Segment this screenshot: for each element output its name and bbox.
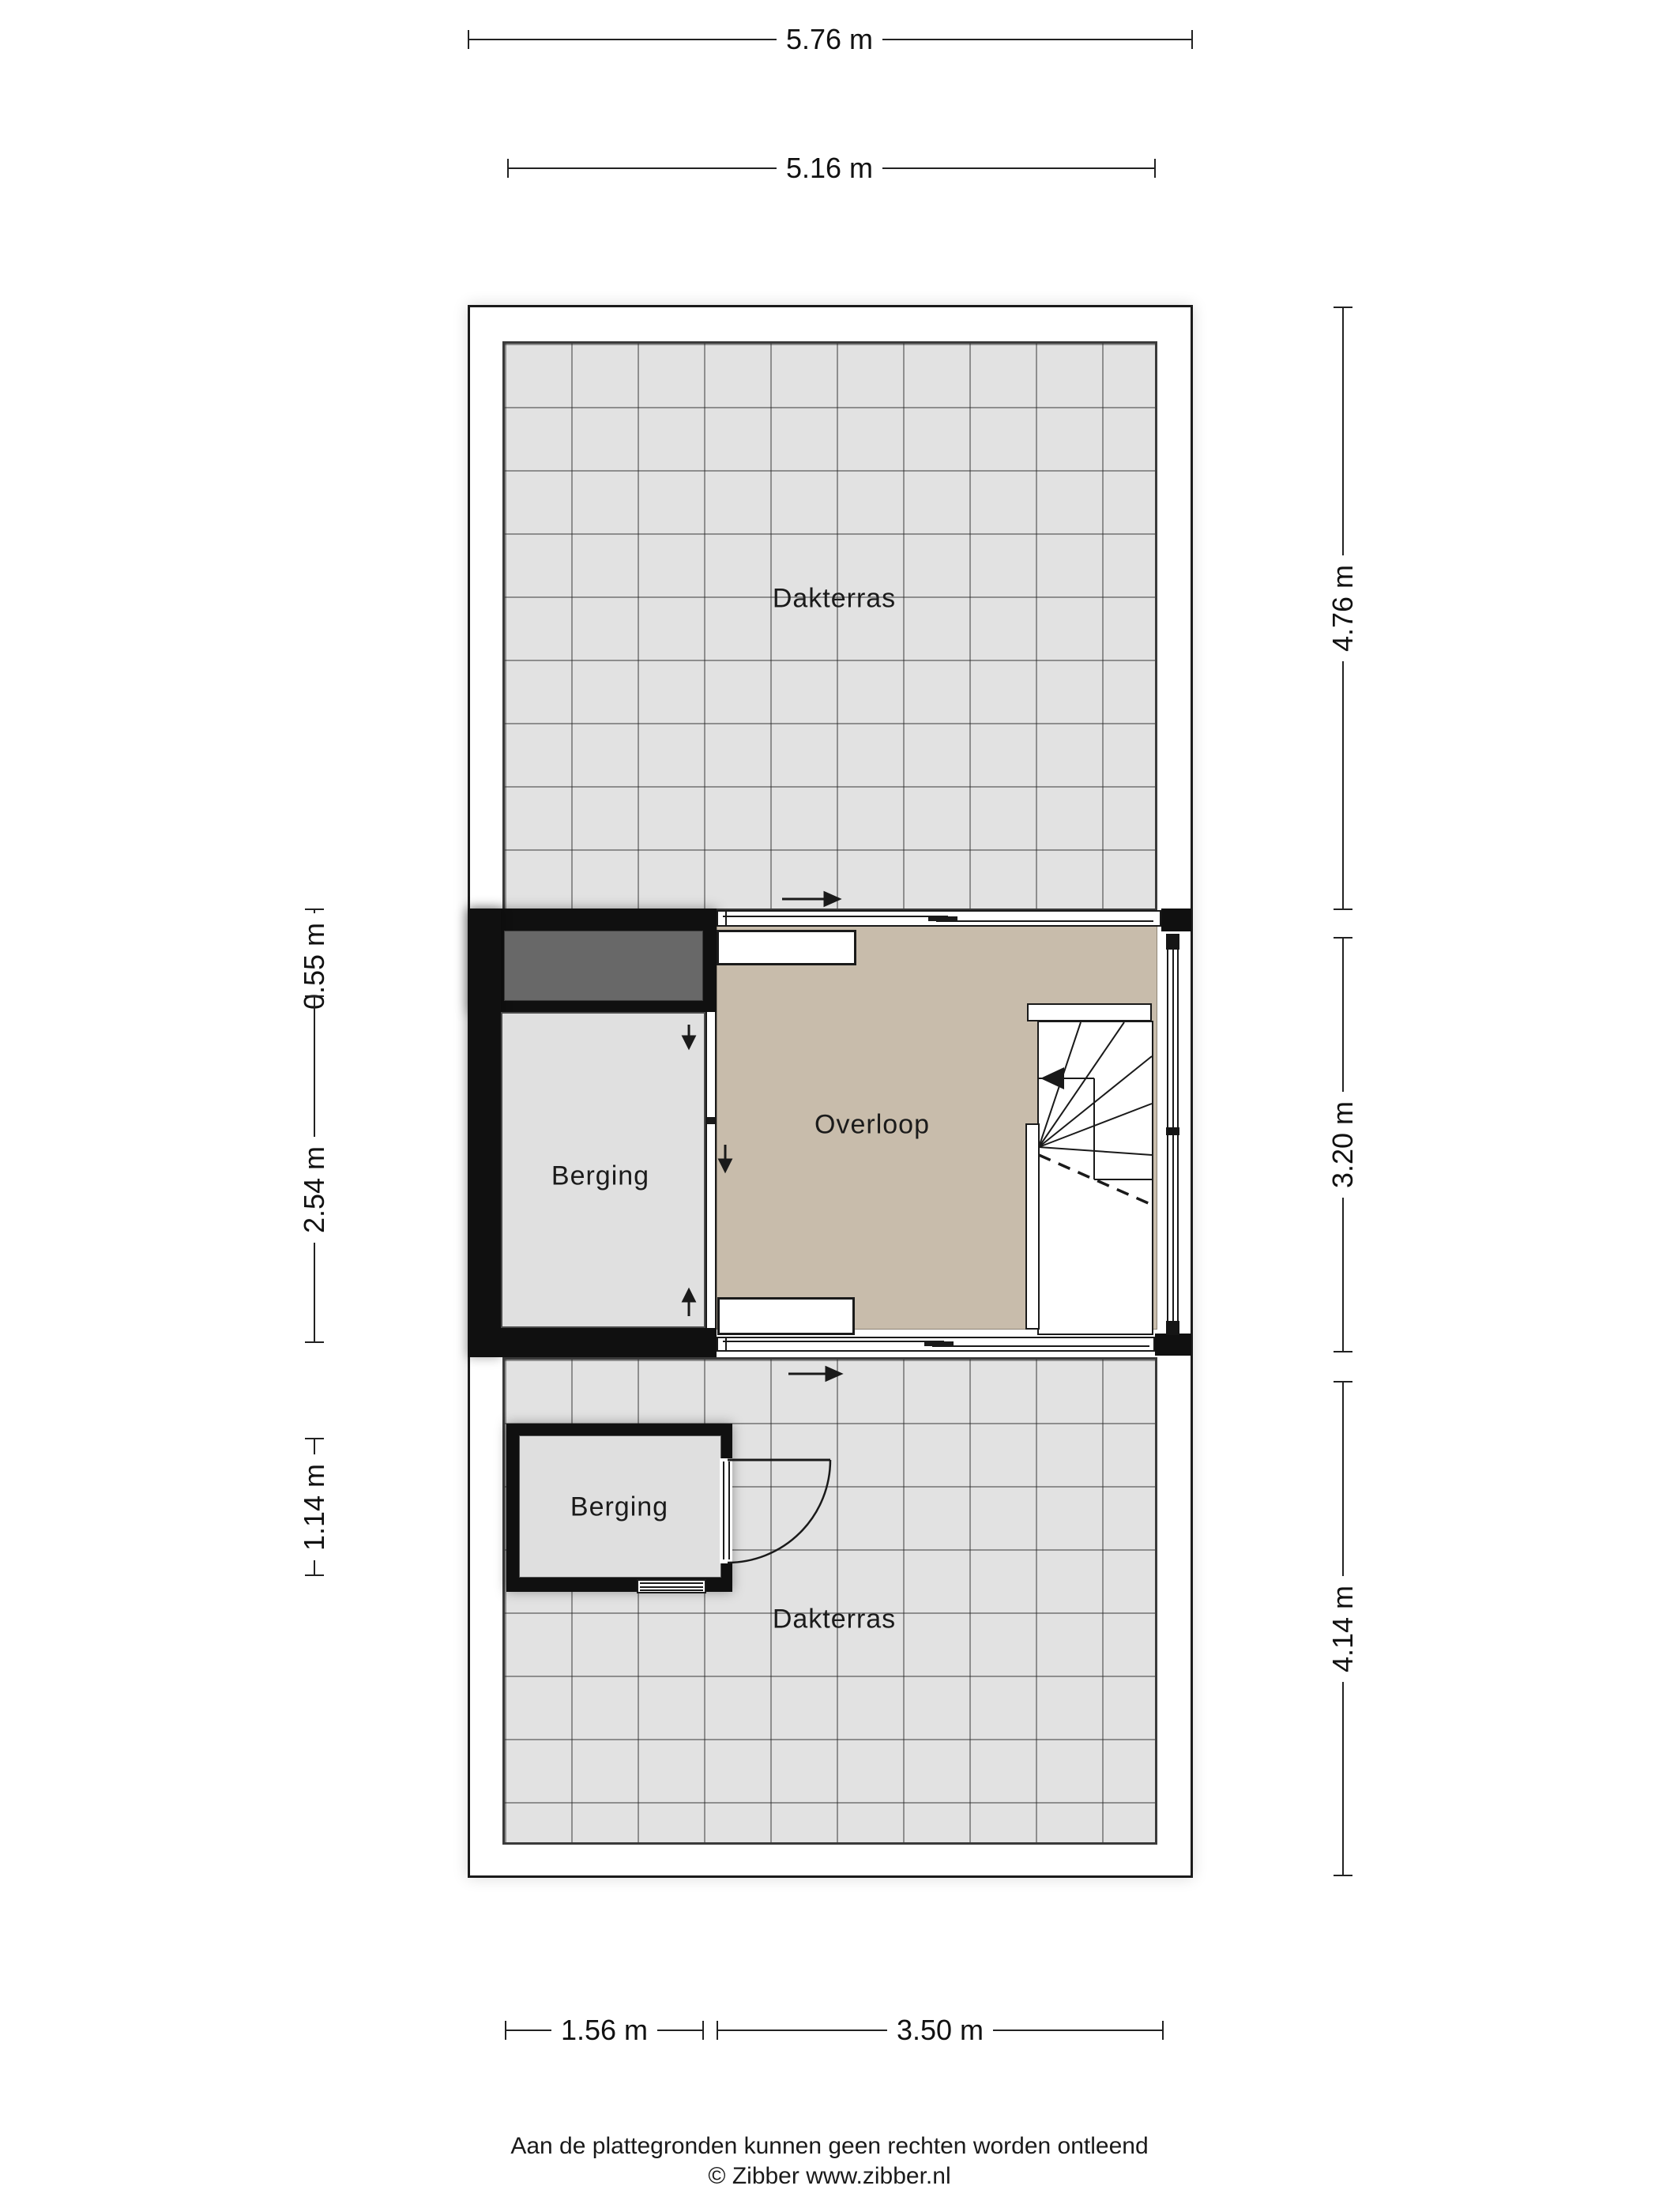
roof-element-dark xyxy=(504,931,703,1001)
sliding-door-top xyxy=(717,910,1161,927)
shed-door-opening xyxy=(720,1458,732,1563)
footer-disclaimer: Aan de plattegronden kunnen geen rechten… xyxy=(510,2133,1148,2160)
stair-landing-bar xyxy=(1027,1003,1152,1021)
room-label-overloop: Overloop xyxy=(814,1110,930,1141)
shed-window xyxy=(637,1579,706,1593)
wall-corner-top-right xyxy=(1161,908,1191,931)
sliding-partition xyxy=(705,1012,717,1328)
wall-corner-bottom-right xyxy=(1155,1334,1191,1356)
cupboard-top xyxy=(717,930,856,965)
room-label-dakterras-top: Dakterras xyxy=(773,584,896,615)
stair-wall-strip xyxy=(1025,1123,1040,1330)
wall-left xyxy=(468,908,501,1357)
footer-credit: © Zibber www.zibber.nl xyxy=(708,2163,950,2190)
sliding-door-bottom xyxy=(717,1337,1155,1352)
sliding-partition-handle xyxy=(705,1117,717,1124)
roof-terrace-top-floor xyxy=(502,341,1157,911)
room-label-dakterras-bottom: Dakterras xyxy=(773,1604,896,1635)
cupboard-bottom xyxy=(717,1297,855,1335)
floorplan-canvas: Dakterras Berging Overloop Berging Dakte… xyxy=(0,0,1659,2212)
window-cap-top xyxy=(1166,934,1179,950)
window-mullion xyxy=(1166,1127,1179,1135)
stairwell xyxy=(1037,1021,1153,1335)
room-label-berging-middle: Berging xyxy=(551,1161,649,1192)
room-label-berging-bottom: Berging xyxy=(570,1492,668,1523)
window-cap-bottom xyxy=(1166,1321,1179,1335)
wall-berging-bottom xyxy=(468,1328,717,1357)
